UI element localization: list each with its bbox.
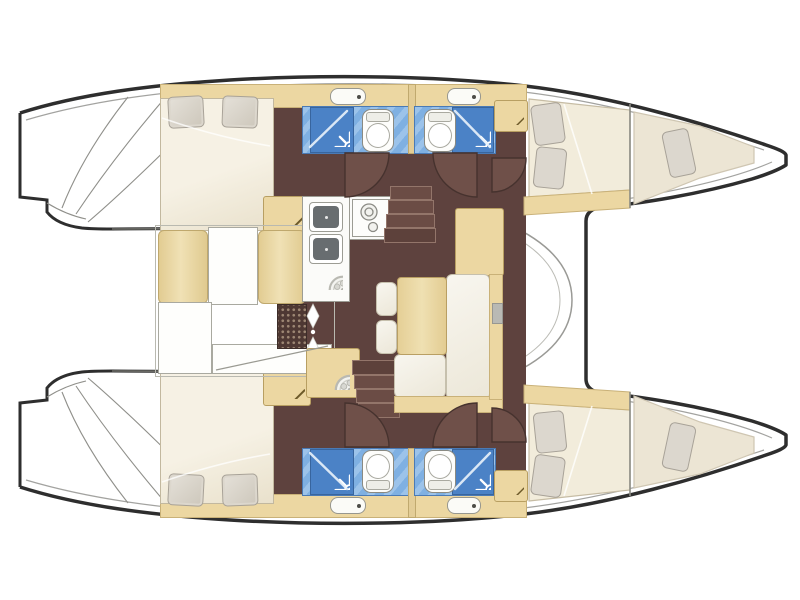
sofa-plinth <box>394 396 503 413</box>
port-fwd-toilet <box>424 109 456 152</box>
seat-cushion <box>376 320 397 354</box>
starboard-aft-toilet <box>362 450 394 493</box>
pillow <box>221 473 258 506</box>
salon-entry-grid-mat <box>277 304 307 349</box>
starboard-bow-inner-line <box>598 397 772 438</box>
port-bow-inner-line <box>598 162 772 203</box>
pillow <box>167 473 205 507</box>
window-mullion <box>492 303 503 324</box>
galley-sink <box>309 202 343 232</box>
shower-spray-icon <box>314 111 350 147</box>
forward-crossbeam <box>586 207 601 394</box>
shower-spray-icon <box>455 111 491 147</box>
starboard-fwd-sink <box>447 497 481 514</box>
shower-spray-icon <box>455 454 491 490</box>
dining-table <box>397 277 447 355</box>
round-hatch-icon <box>316 356 350 390</box>
port-aft-sink <box>330 88 366 105</box>
port-aft-toilet <box>362 109 394 152</box>
port-hull-corridor-floor <box>272 106 302 198</box>
sofa-side-plinth <box>489 274 503 400</box>
shower-spray-icon <box>314 454 350 490</box>
cockpit-bench-cushion <box>158 230 208 304</box>
starboard-forward-cabin-bed <box>524 385 630 501</box>
sofa-backrest <box>446 274 490 400</box>
port-fwd-shower-stall <box>452 107 494 153</box>
cockpit-bench-cushion <box>258 230 306 304</box>
salon-cabinet <box>455 208 504 276</box>
round-hatch-icon <box>311 258 343 290</box>
cockpit-table <box>208 227 258 305</box>
pillow <box>221 95 258 128</box>
seat-cushion <box>376 282 397 316</box>
port-fwd-wardrobe <box>494 100 528 132</box>
starboard-forepeak-berth <box>634 396 754 488</box>
pillow <box>167 95 205 129</box>
port-aft-shower-stall <box>310 107 354 153</box>
starboard-fwd-toilet <box>424 450 456 493</box>
port-fwd-sink <box>447 88 481 105</box>
catamaran-floorplan <box>0 0 800 600</box>
cockpit-seat <box>158 302 212 374</box>
sofa-seat <box>394 354 446 398</box>
hanger-icon <box>498 478 524 495</box>
starboard-hull-corridor-floor <box>272 402 302 494</box>
round-hatch-galley <box>311 258 343 290</box>
starboard-aft-sink <box>330 497 366 514</box>
hanger-icon <box>269 203 305 225</box>
port-forepeak-berth <box>634 112 754 204</box>
hanger-icon <box>498 108 524 125</box>
starboard-fwd-wardrobe <box>494 470 528 502</box>
starboard-fwd-shower-stall <box>452 449 494 495</box>
hanger-icon <box>269 377 305 399</box>
port-forward-cabin-bed <box>524 99 630 215</box>
starboard-aft-shower-stall <box>310 449 354 495</box>
